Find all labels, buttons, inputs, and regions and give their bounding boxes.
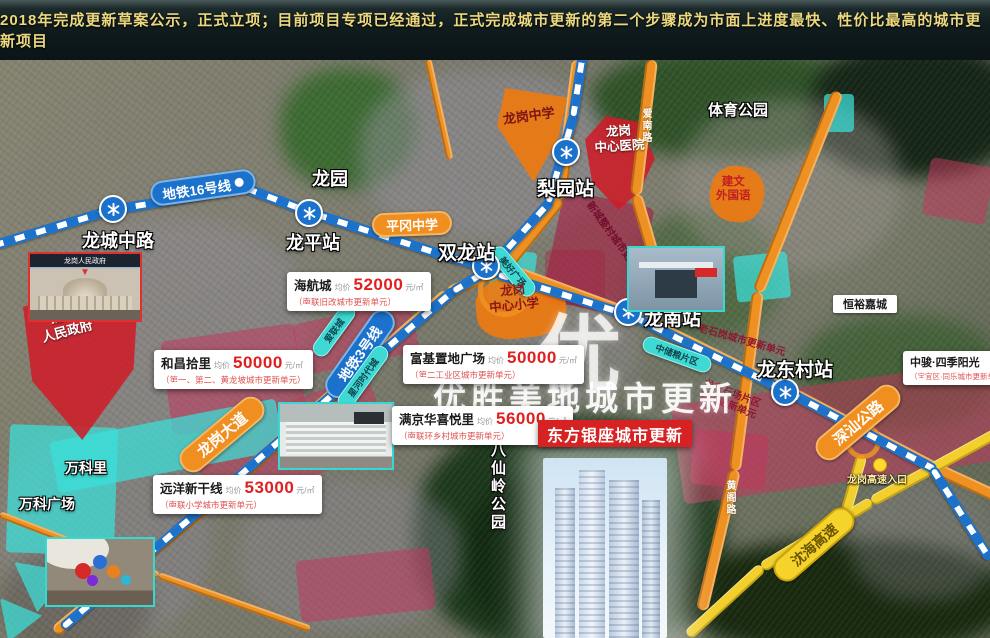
mall-sign [354,412,384,424]
balloon [93,555,107,569]
project-name: 中骏·四季阳光 [910,354,980,370]
mall-photo[interactable] [278,402,394,470]
label-vanke-li: 万科里 [65,458,107,478]
station-label-shuanglong: 双龙站 [438,238,495,265]
station-label-longdongcun: 龙东村站 [757,355,833,382]
building-louvres [286,422,386,454]
label-vanke-plaza: 万科广场 [19,494,75,514]
metro-line16-label: 地铁16号线 [161,174,232,203]
red-sign [695,268,717,277]
zone-label-center-primary: 龙岗 中心小学 [487,281,540,316]
expressway-entrance-label: 龙岗高速入口 [847,471,907,486]
station-entrance-photo[interactable] [627,246,725,312]
tower-shape [579,470,605,638]
pinggang-school-pill: 平冈中学 [372,211,453,238]
project-banner-label: 东方银座城市更新 [547,422,683,446]
road-name-label: 黄阁路 [722,480,737,516]
hengyu-jiacheng-label: 恒裕嘉城 [843,296,887,312]
metro-station-icon-longdongcun[interactable] [771,378,799,406]
balloon [107,565,120,578]
project-name: 海航城 [294,275,332,294]
tower-shape [642,500,660,638]
project-name: 满京华喜悦里 [399,409,474,428]
station-label-liyuan: 梨园站 [537,174,594,201]
zone-label-hospital: 龙岗 中心医院 [593,123,645,156]
location-pin-icon: ▼ [80,267,90,278]
renewal-note: （第一、第二、黄龙坡城市更新单元） [161,374,306,386]
park-label-longyuan: 龙园 [312,165,348,191]
balloon [87,575,98,586]
header-bar: 2018年完成更新草案公示，正式立项；目前项目专项已经通过，正式完成城市更新的第… [0,0,990,60]
price-card-yuanyang[interactable]: 远洋新干线均价53000元/㎡ （南联小学城市更新单元） [153,475,322,514]
project-banner: 东方银座城市更新 [538,420,692,447]
renewal-note: （南联小学城市更新单元） [160,499,315,511]
tower-shape [555,488,575,638]
expressway-entrance-dot [873,458,887,472]
renewal-zone [921,157,990,225]
renewal-note: （宝宜区·同乐城市更新单元） [910,371,990,382]
price-card-hechang[interactable]: 和昌拾里均价50000元/㎡ （第一、第二、黄龙坡城市更新单元） [154,350,313,389]
metro-line16-pill: 地铁16号线 [149,168,257,208]
pinggang-school-label: 平冈中学 [386,214,439,235]
renewal-note: （第二工业区城市更新单元） [410,369,577,381]
balloon-photo[interactable] [45,537,155,607]
balloon [121,575,131,585]
satellite-map: 龙城中路 龙平站 双龙站 梨园站 龙南站 龙东村站 龙园 体育公园 八仙岭公园 … [0,60,990,638]
photo-caption-bar: 龙岗人民政府 [30,254,140,267]
tower-shape [609,480,639,638]
government-photo-caption: 龙岗人民政府 [64,256,106,266]
park-label-sports: 体育公园 [708,99,768,120]
metro-mini-icon [234,177,244,187]
metro-station-icon-longcheng[interactable] [99,195,127,223]
hengyu-jiacheng-box: 恒裕嘉城 [833,295,897,313]
price-card-fuji[interactable]: 富基置地广场均价50000元/㎡ （第二工业区城市更新单元） [403,345,584,384]
park-label-baxianling: 八仙岭公园 [487,442,508,532]
project-name: 富基置地广场 [410,348,485,367]
headline-text: 2018年完成更新草案公示，正式立项；目前项目专项已经通过，正式完成城市更新的第… [0,9,990,51]
project-rendering-image [543,458,667,638]
project-name: 和昌拾里 [161,353,211,372]
station-label-longcheng: 龙城中路 [82,227,154,253]
zone-label-jianwen: 建文 外国语 [716,176,751,204]
renewal-note: （南联旧改城市更新单元） [294,296,424,308]
station-label-longping: 龙平站 [286,229,340,255]
slide: 2018年完成更新草案公示，正式立项；目前项目专项已经通过，正式完成城市更新的第… [0,0,990,638]
entrance [655,270,697,298]
facade-columns [38,296,132,310]
price-card-zhongjun[interactable]: 中骏·四季阳光 （宝宜区·同乐城市更新单元） [903,351,990,385]
metro-station-icon-longping[interactable] [295,199,323,227]
metro-station-icon-liyuan[interactable] [552,138,580,166]
price-card-haihang[interactable]: 海航城均价52000元/㎡ （南联旧改城市更新单元） [287,272,431,311]
government-photo[interactable]: 龙岗人民政府 ▼ [28,252,142,322]
project-name: 远洋新干线 [160,478,223,497]
